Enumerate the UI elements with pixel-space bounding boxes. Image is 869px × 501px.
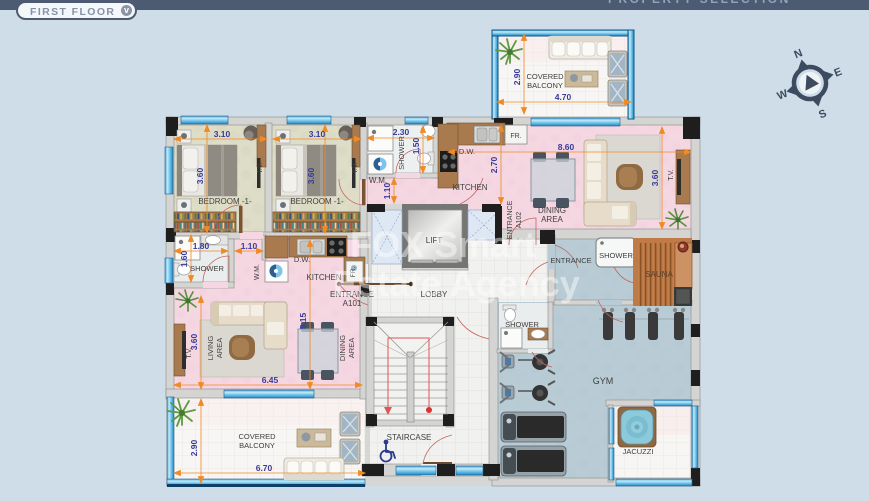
svg-text:3.60: 3.60 [650,169,660,186]
svg-text:COVERED: COVERED [238,432,276,441]
svg-text:AREA: AREA [215,338,224,358]
svg-text:FR.: FR. [510,133,521,140]
svg-text:Estate Agency: Estate Agency [333,263,580,304]
svg-text:1.80: 1.80 [193,241,210,251]
svg-text:SHOWER: SHOWER [397,136,406,170]
svg-text:2.90: 2.90 [512,68,522,85]
svg-text:1.60: 1.60 [179,250,189,267]
svg-text:SAUNA: SAUNA [645,270,673,279]
svg-text:JACUZZI: JACUZZI [623,447,654,456]
svg-text:D.W.: D.W. [459,147,475,156]
svg-text:FOX Smart: FOX Smart [350,224,536,265]
svg-text:N: N [792,47,804,61]
svg-text:COVERED: COVERED [526,72,564,81]
svg-text:8.60: 8.60 [558,142,575,152]
svg-text:6.45: 6.45 [262,375,279,385]
svg-text:1.10: 1.10 [241,241,258,251]
svg-text:AREA: AREA [347,338,356,358]
svg-text:DINING: DINING [538,206,566,215]
svg-text:AREA: AREA [541,215,563,224]
svg-text:T.V.: T.V. [352,162,359,173]
svg-text:T.V.: T.V. [257,162,264,173]
svg-text:5.15: 5.15 [298,312,308,329]
svg-text:DINING: DINING [338,335,347,361]
svg-text:BALCONY: BALCONY [527,81,563,90]
svg-text:1.50: 1.50 [411,137,421,154]
svg-text:T.V.: T.V. [668,169,675,180]
svg-text:SHOWER: SHOWER [505,320,539,329]
svg-text:3.10: 3.10 [214,129,231,139]
svg-text:SHOWER: SHOWER [599,251,633,260]
svg-text:2.90: 2.90 [189,439,199,456]
svg-text:3.10: 3.10 [309,129,326,139]
svg-text:BALCONY: BALCONY [239,441,275,450]
svg-text:S: S [817,108,828,122]
svg-text:6.70: 6.70 [256,463,273,473]
svg-text:LIVING: LIVING [206,336,215,361]
svg-text:E: E [833,66,844,80]
svg-text:W.M.: W.M. [254,264,261,280]
svg-text:W: W [775,87,790,102]
svg-text:2.30: 2.30 [393,127,410,137]
svg-text:BEDROOM -1-: BEDROOM -1- [198,197,252,206]
svg-text:2.70: 2.70 [489,156,499,173]
svg-text:3.60: 3.60 [195,167,205,184]
svg-text:KITCHEN: KITCHEN [452,183,487,192]
svg-text:BEDROOM -1-: BEDROOM -1- [290,197,344,206]
svg-text:GYM: GYM [593,376,614,386]
svg-text:D.W.: D.W. [294,255,310,264]
svg-text:T.V.: T.V. [186,347,193,358]
svg-text:SHOWER: SHOWER [190,264,224,273]
svg-text:4.70: 4.70 [555,92,572,102]
svg-text:3.60: 3.60 [306,167,316,184]
svg-text:W.M.: W.M. [369,176,387,185]
svg-text:STAIRCASE: STAIRCASE [387,433,432,442]
